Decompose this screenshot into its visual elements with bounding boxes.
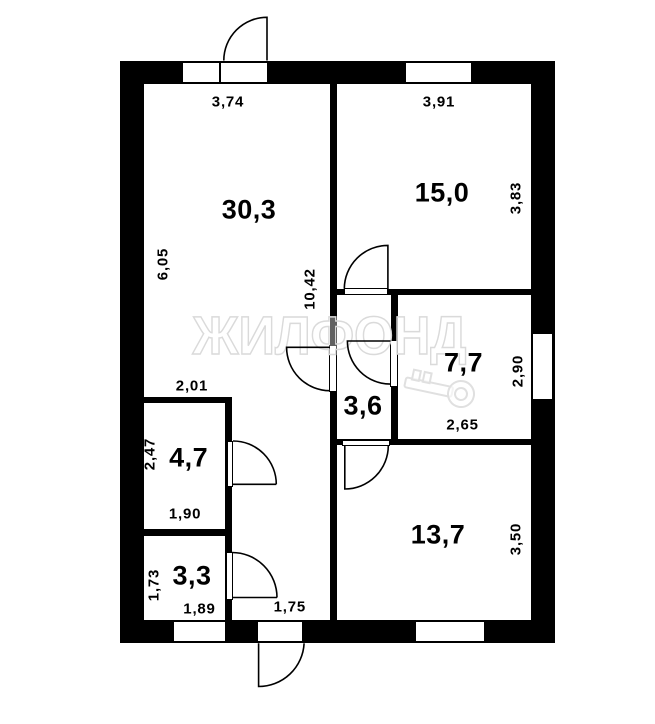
svg-text:ЖИЛФОНД: ЖИЛФОНД bbox=[192, 306, 467, 366]
